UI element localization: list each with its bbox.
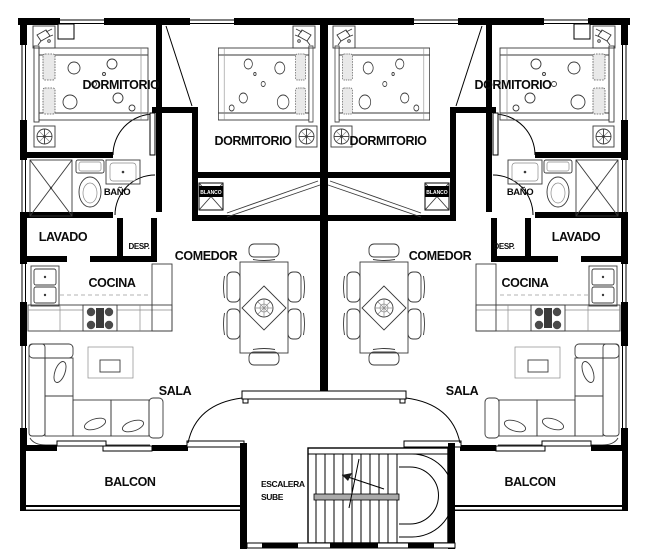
- room-label-laundry-left: LAVADO: [39, 230, 88, 244]
- stair-rail: [314, 494, 399, 500]
- room-labels: DORMITORIO DORMITORIO BAÑO LAVADO DESP. …: [39, 78, 601, 502]
- room-label-balcony-left: BALCON: [104, 475, 155, 489]
- room-label-kitchen-right: COCINA: [502, 276, 549, 290]
- stair-bottom-wall: [247, 543, 455, 548]
- room-label-balcony-right: BALCON: [504, 475, 555, 489]
- room-label-living-right: SALA: [446, 384, 479, 398]
- entry-landing: [242, 391, 406, 403]
- closet-label-left: BLANCO: [200, 190, 221, 196]
- stair-label-direction: SUBE: [261, 492, 284, 502]
- stair-hall-wall-left: [240, 443, 247, 549]
- room-label-kitchen-left: COCINA: [89, 276, 136, 290]
- room-label-dining-left: COMEDOR: [175, 249, 238, 263]
- room-label-bedroom-outer-left: DORMITORIO: [82, 78, 160, 92]
- room-label-bedroom-inner-right: DORMITORIO: [349, 134, 427, 148]
- room-label-laundry-right: LAVADO: [552, 230, 601, 244]
- room-label-living-left: SALA: [159, 384, 192, 398]
- room-label-bedroom-outer-right: DORMITORIO: [474, 78, 552, 92]
- room-label-bathroom-right: BAÑO: [507, 187, 533, 198]
- room-label-dining-right: COMEDOR: [409, 249, 472, 263]
- room-label-pantry-left: DESP.: [129, 242, 150, 251]
- room-label-bathroom-left: BAÑO: [104, 187, 130, 198]
- closet-label-right: BLANCO: [426, 190, 447, 196]
- floor-plan-drawing: DORMITORIO DORMITORIO BAÑO LAVADO DESP. …: [0, 0, 648, 555]
- stair-label-name: ESCALERA: [261, 479, 305, 489]
- room-label-pantry-right: DESP.: [494, 242, 515, 251]
- central-party-wall: [320, 18, 328, 395]
- floor-plan-canvas: DORMITORIO DORMITORIO BAÑO LAVADO DESP. …: [0, 0, 648, 555]
- room-label-bedroom-inner-left: DORMITORIO: [214, 134, 292, 148]
